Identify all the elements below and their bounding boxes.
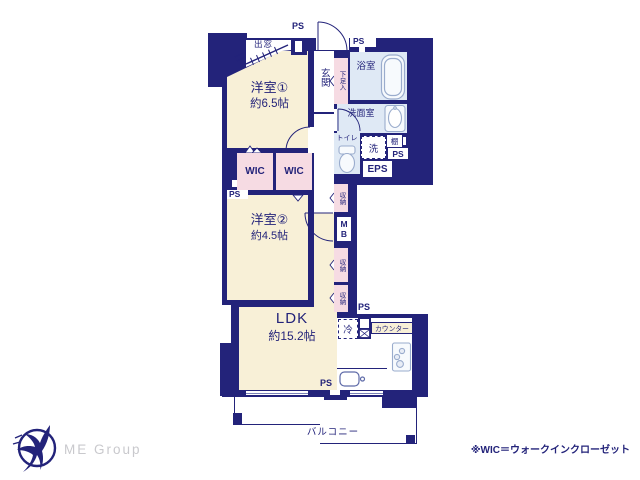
room-western2	[227, 195, 308, 300]
counter-box: カウンター	[371, 322, 413, 334]
mb-box: MB	[334, 214, 354, 244]
balcony-block-right	[406, 435, 415, 444]
balcony-block-left	[233, 413, 242, 425]
shelf-slot	[403, 137, 406, 145]
ps-label-kitchen: PS	[320, 379, 332, 388]
outside-left-ldk	[222, 305, 231, 343]
balcony-left	[234, 397, 320, 425]
toilet-label: トイレ	[334, 135, 360, 142]
logo-speed-line	[13, 442, 20, 444]
floorplan: WIC WIC 下足入 洗 棚 PS EPS 収納 MB 収納 収納 冷 カウン…	[0, 0, 640, 480]
ldk-hall	[314, 213, 334, 318]
ldk-window-left	[246, 391, 308, 395]
eps-box: EPS	[363, 161, 392, 177]
ps-label-bath: PS	[353, 37, 364, 46]
ps-box-shelf: PS	[388, 148, 408, 159]
wic-1: WIC	[237, 153, 273, 190]
entry-door-opening	[316, 38, 349, 50]
wic-note: ※WIC＝ウォークインクローゼット	[471, 446, 630, 456]
swallow-icon	[17, 425, 50, 472]
washroom-label: 洗面室	[340, 109, 382, 118]
bathroom-label: 浴室	[350, 62, 382, 72]
closet-2: 収納	[334, 248, 348, 282]
room1-door-opening	[308, 127, 314, 153]
balcony-label: バルコニー	[288, 428, 378, 438]
outside-right-bottom	[428, 314, 433, 397]
sink-counter	[337, 368, 387, 390]
ps-bath-slot	[359, 47, 365, 52]
kitchen-shaft-slot	[360, 319, 369, 328]
ps-notch-slot	[330, 390, 340, 395]
washer-box: 洗	[361, 136, 386, 159]
closet-1: 収納	[334, 184, 348, 212]
room2-name: 洋室②	[227, 213, 312, 226]
bay-window-label: 出窓	[254, 40, 273, 49]
ps-label-mid: PS	[358, 303, 370, 312]
room2-size: 約4.5帖	[227, 231, 312, 242]
washroom-door-opening	[334, 109, 337, 131]
outside-right-middle	[357, 185, 433, 314]
wic-2: WIC	[276, 153, 312, 190]
closet-3: 収納	[334, 285, 348, 312]
ldk-window-right	[350, 391, 383, 395]
logo-speed-line	[15, 435, 22, 438]
logo-text: ME Group	[64, 443, 142, 457]
genkan-step-line	[314, 112, 334, 114]
logo-circle	[19, 430, 55, 466]
genkan-label: 玄関	[314, 55, 334, 99]
ps-label-left: PS	[229, 190, 240, 199]
ps-label-top: PS	[292, 22, 304, 31]
ldk-size: 約15.2帖	[242, 330, 342, 342]
room1-name: 洋室①	[227, 81, 312, 94]
room1-size: 約6.5帖	[227, 99, 312, 111]
me-group-logo	[12, 422, 62, 476]
ldk-name: LDK	[242, 311, 342, 326]
ps-shaft-top-slot	[295, 41, 302, 52]
shoe-box: 下足入	[334, 58, 348, 104]
room-bathroom	[350, 52, 407, 100]
shelf-box: 棚	[387, 135, 402, 147]
